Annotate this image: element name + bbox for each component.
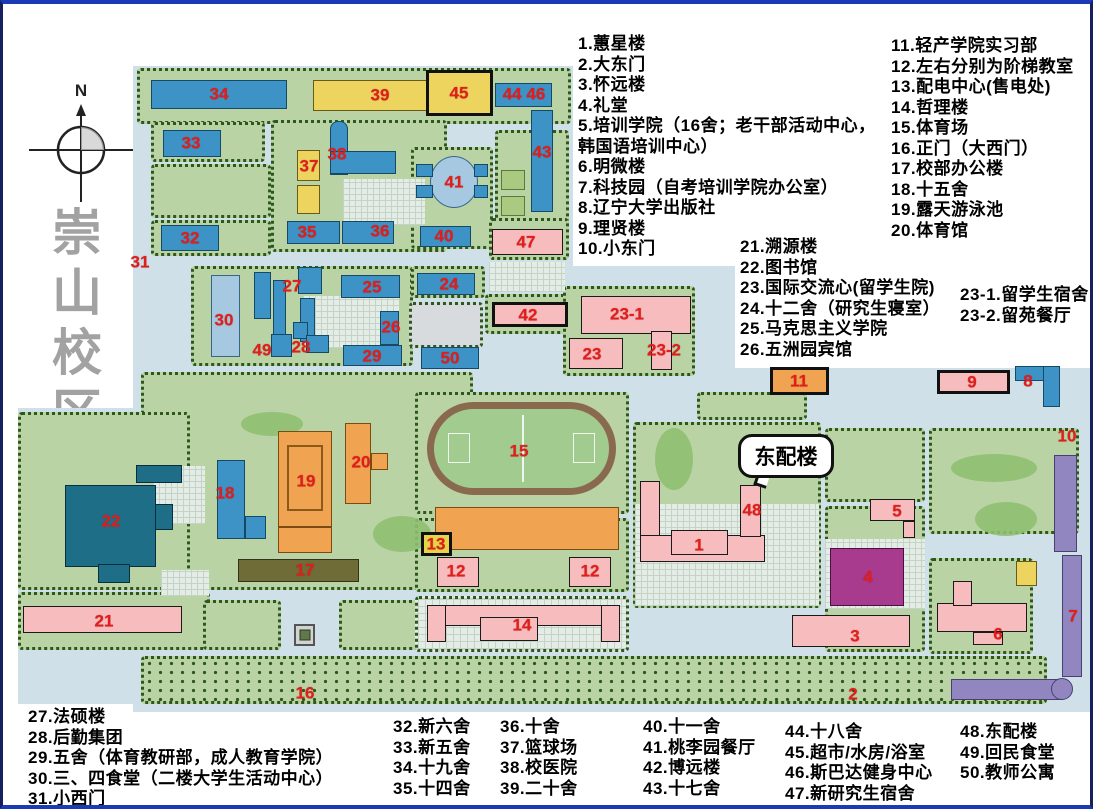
legend-item: 31.小西门 <box>28 789 333 809</box>
legend-item: 27.法硕楼 <box>28 707 333 728</box>
dongpeilou-callout: 东配楼 <box>738 434 834 478</box>
legend-item: 49.回民食堂 <box>960 743 1055 764</box>
legend-item: 15.体育场 <box>891 118 1074 139</box>
legend-36-39: 36.十舍37.篮球场38.校医院39.二十舍 <box>500 717 578 799</box>
legend-item: 7.科技园（自考培训学院办公室） <box>578 178 876 199</box>
legend-item: 39.二十舍 <box>500 779 578 800</box>
legend-item: 33.新五舍 <box>393 738 471 759</box>
legend-item: 45.超市/水房/浴室 <box>785 743 933 764</box>
legend-44-47: 44.十八舍45.超市/水房/浴室46.斯巴达健身中心47.新研究生宿舍 <box>785 722 933 804</box>
legend-item: 26.五洲园宾馆 <box>740 340 940 361</box>
legend-27-31: 27.法硕楼28.后勤集团29.五舍（体育教研部，成人教育学院）30.三、四食堂… <box>28 707 333 809</box>
legend-item: 1.蕙星楼 <box>578 34 876 55</box>
legend-48-50: 48.东配楼49.回民食堂50.教师公寓 <box>960 722 1055 784</box>
legend-item: 韩国语培训中心） <box>578 137 876 158</box>
legend-item: 16.正门（大西门） <box>891 139 1074 160</box>
legend-item: 29.五舍（体育教研部，成人教育学院） <box>28 748 333 769</box>
legend-item: 43.十七舍 <box>643 779 756 800</box>
legend-item: 48.东配楼 <box>960 722 1055 743</box>
legend-item: 21.溯源楼 <box>740 237 940 258</box>
legend-item: 5.培训学院（16舍；老干部活动中心， <box>578 116 876 137</box>
legend-item: 30.三、四食堂（二楼大学生活动中心） <box>28 769 333 790</box>
legend-40-43: 40.十一舍41.桃李园餐厅42.博远楼43.十七舍 <box>643 717 756 799</box>
legend-item: 36.十舍 <box>500 717 578 738</box>
legend-21-26: 21.溯源楼22.图书馆23.国际交流心(留学生院)24.十二舍（研究生寝室）2… <box>740 237 940 360</box>
legend-item: 35.十四舍 <box>393 779 471 800</box>
legend-item: 42.博远楼 <box>643 758 756 779</box>
legend-item: 38.校医院 <box>500 758 578 779</box>
legend-item: 47.新研究生宿舍 <box>785 784 933 805</box>
legend-11-20: 11.轻产学院实习部12.左右分别为阶梯教室13.配电中心(售电处)14.哲理楼… <box>891 36 1074 241</box>
legend-item: 28.后勤集团 <box>28 728 333 749</box>
legend-item: 9.理贤楼 <box>578 219 876 240</box>
legend-item: 41.桃李园餐厅 <box>643 738 756 759</box>
legend-item: 12.左右分别为阶梯教室 <box>891 57 1074 78</box>
legend: 1.蕙星楼2.大东门3.怀远楼4.礼堂5.培训学院（16舍；老干部活动中心，韩国… <box>3 4 1093 809</box>
legend-item: 11.轻产学院实习部 <box>891 36 1074 57</box>
legend-item: 37.篮球场 <box>500 738 578 759</box>
legend-item: 4.礼堂 <box>578 96 876 117</box>
legend-item: 44.十八舍 <box>785 722 933 743</box>
legend-item: 25.马克思主义学院 <box>740 319 940 340</box>
legend-item: 23-1.留学生宿舍 <box>960 285 1089 306</box>
legend-item: 24.十二舍（研究生寝室） <box>740 299 940 320</box>
legend-32-35: 32.新六舍33.新五舍34.十九舍35.十四舍 <box>393 717 471 799</box>
legend-item: 13.配电中心(售电处) <box>891 77 1074 98</box>
legend-1-10: 1.蕙星楼2.大东门3.怀远楼4.礼堂5.培训学院（16舍；老干部活动中心，韩国… <box>578 34 876 260</box>
legend-item: 18.十五舍 <box>891 180 1074 201</box>
legend-item: 2.大东门 <box>578 55 876 76</box>
legend-23-sub: 23-1.留学生宿舍23-2.留苑餐厅 <box>960 285 1089 326</box>
legend-item: 23.国际交流心(留学生院) <box>740 278 940 299</box>
legend-item: 46.斯巴达健身中心 <box>785 763 933 784</box>
dongpeilou-callout-text: 东配楼 <box>755 441 818 471</box>
legend-item: 19.露天游泳池 <box>891 200 1074 221</box>
legend-item: 6.明微楼 <box>578 157 876 178</box>
legend-item: 8.辽宁大学出版社 <box>578 198 876 219</box>
legend-item: 17.校部办公楼 <box>891 159 1074 180</box>
legend-item: 40.十一舍 <box>643 717 756 738</box>
legend-item: 50.教师公寓 <box>960 763 1055 784</box>
legend-item: 22.图书馆 <box>740 258 940 279</box>
legend-item: 3.怀远楼 <box>578 75 876 96</box>
legend-item: 32.新六舍 <box>393 717 471 738</box>
legend-item: 23-2.留苑餐厅 <box>960 306 1089 327</box>
legend-item: 34.十九舍 <box>393 758 471 779</box>
legend-item: 14.哲理楼 <box>891 98 1074 119</box>
map-frame: N 崇山校区 34394544 463338374143353632404731… <box>0 0 1093 809</box>
